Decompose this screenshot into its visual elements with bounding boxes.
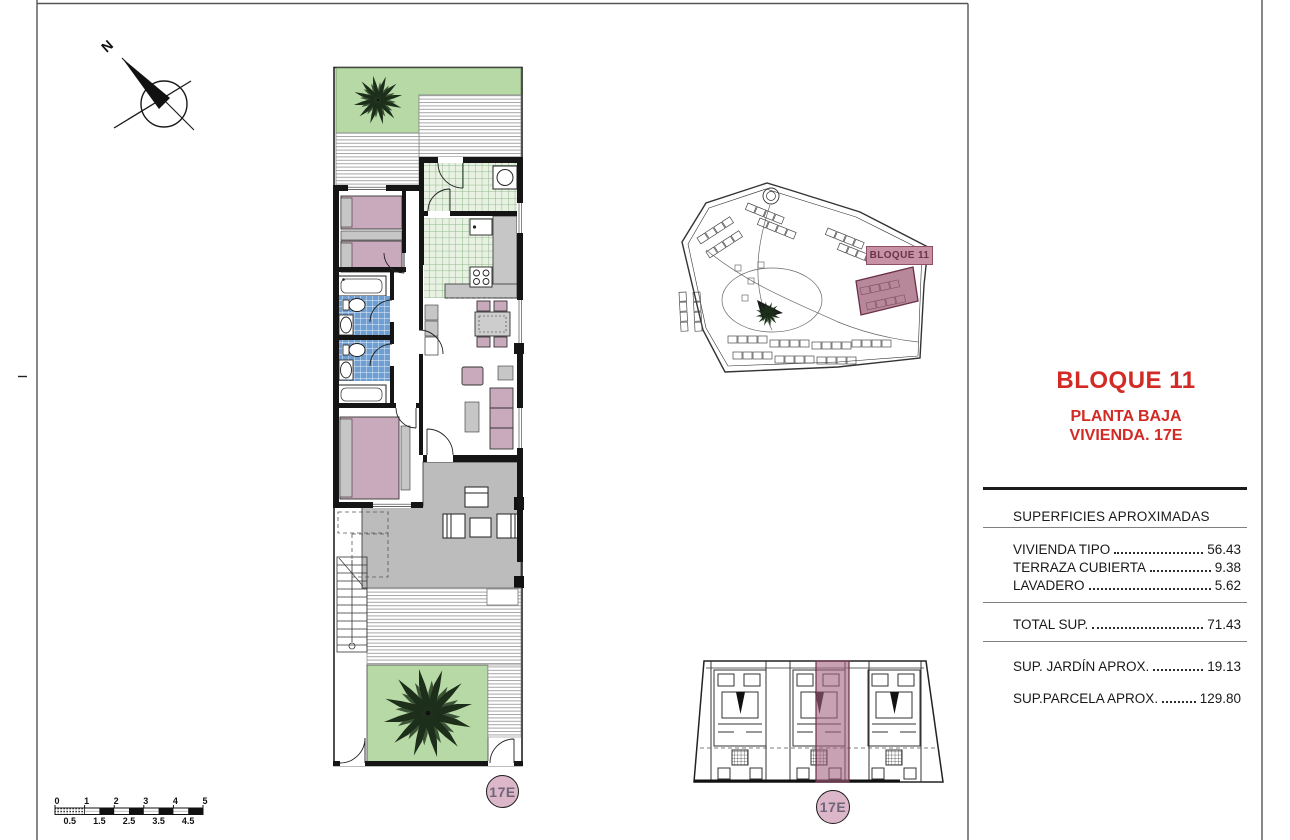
scale-tick-label: 4 [165, 796, 185, 806]
leader-dots [1153, 669, 1203, 671]
scale-tick-label: 2.5 [119, 816, 139, 826]
block-highlight [816, 661, 849, 782]
area-row-label: SUP.PARCELA APROX. [1013, 691, 1158, 706]
area-row: LAVADERO 5.62 [983, 575, 1247, 593]
area-row-label: SUP. JARDÍN APROX. [1013, 659, 1149, 674]
scale-tick-label: 3.5 [149, 816, 169, 826]
leader-dots [1150, 570, 1211, 572]
compass-icon [114, 58, 194, 130]
divider [983, 641, 1247, 642]
title-block: BLOQUE 11 PLANTA BAJA VIVIENDA. 17E [1000, 367, 1252, 445]
scale-tick-label: 1 [77, 796, 97, 806]
block-title: BLOQUE 11 [1000, 367, 1252, 395]
area-row-value: 71.43 [1207, 617, 1241, 632]
scale-bar [55, 805, 203, 815]
leader-dots [1162, 701, 1196, 703]
area-row-label: VIVIENDA TIPO [1013, 542, 1110, 557]
area-row-value: 19.13 [1207, 659, 1241, 674]
leader-dots [1114, 552, 1203, 554]
areas-table-header: SUPERFICIES APROXIMADAS [983, 509, 1247, 524]
divider [983, 487, 1247, 490]
area-row-label: TOTAL SUP. [1013, 617, 1088, 632]
bedroom-1 [341, 196, 402, 272]
areas-table: SUPERFICIES APROXIMADAS VIVIENDA TIPO 56… [983, 487, 1247, 706]
area-total-row: TOTAL SUP. 71.43 [983, 612, 1247, 632]
site-plan [679, 183, 928, 372]
scale-tick-label: 5 [195, 796, 215, 806]
unit-label: VIVIENDA. 17E [1000, 426, 1252, 445]
area-row-value: 56.43 [1207, 542, 1241, 557]
leader-dots [1089, 588, 1211, 590]
divider [983, 527, 1247, 528]
scale-tick-label: 2 [106, 796, 126, 806]
scale-tick-label: 1.5 [89, 816, 109, 826]
terrace-hatch-left [336, 133, 419, 187]
area-row: SUP. JARDÍN APROX. 19.13 [983, 656, 1247, 674]
area-row: SUP.PARCELA APROX. 129.80 [983, 688, 1247, 706]
scale-tick-label: 4.5 [178, 816, 198, 826]
site-plan-block-label: BLOQUE 11 [866, 246, 933, 265]
area-row: TERRAZA CUBIERTA 9.38 [983, 557, 1247, 575]
plan-sheet: N BLOQUE 11 17E 17E BLOQUE 11 PLANTA BAJ… [0, 0, 1290, 840]
scale-tick-label: 3 [136, 796, 156, 806]
unit-badge-block-plan: 17E [816, 790, 850, 824]
master-bedroom [340, 417, 410, 499]
area-row-value: 5.62 [1215, 578, 1241, 593]
terrace-hatch-right [419, 95, 521, 157]
leader-dots [1092, 627, 1203, 629]
area-row-label: LAVADERO [1013, 578, 1085, 593]
scale-tick-label: 0.5 [60, 816, 80, 826]
area-row-value: 9.38 [1215, 560, 1241, 575]
floor-plan [333, 68, 524, 767]
unit-badge-floor-plan: 17E [486, 775, 519, 808]
area-row-label: TERRAZA CUBIERTA [1013, 560, 1146, 575]
area-row: VIVIENDA TIPO 56.43 [983, 539, 1247, 557]
floor-label: PLANTA BAJA [1000, 407, 1252, 426]
living-dining [425, 301, 513, 449]
area-row-value: 129.80 [1200, 691, 1241, 706]
block-plan [694, 661, 943, 782]
scale-tick-label: 0 [47, 796, 67, 806]
divider [983, 602, 1247, 603]
